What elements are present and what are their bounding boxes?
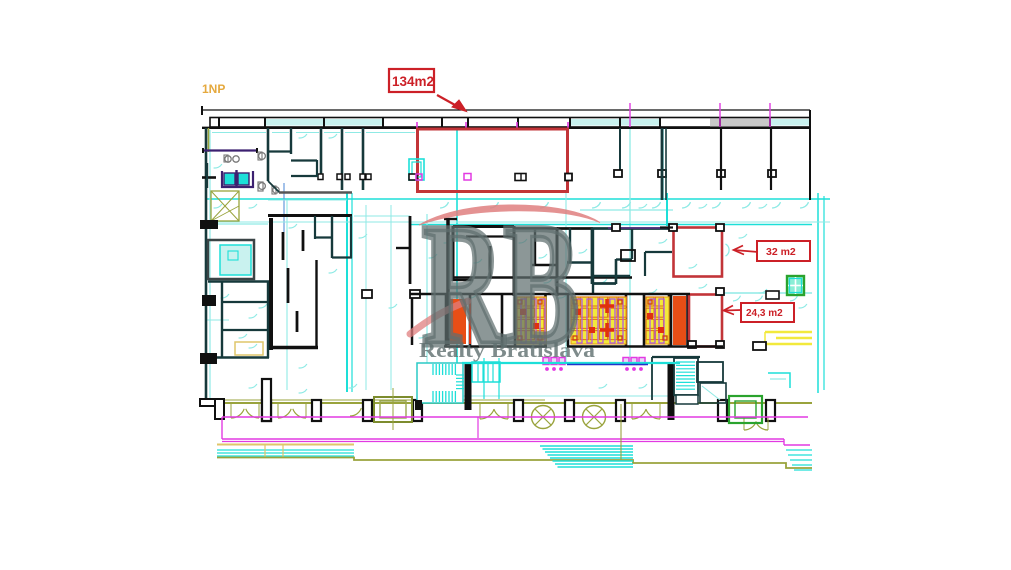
- svg-text:24,3 m2: 24,3 m2: [746, 308, 783, 319]
- svg-text:134m2: 134m2: [392, 74, 434, 89]
- svg-text:1NP: 1NP: [202, 82, 225, 96]
- svg-text:Realty Bratislava: Realty Bratislava: [419, 338, 596, 362]
- svg-text:32 m2: 32 m2: [766, 246, 796, 258]
